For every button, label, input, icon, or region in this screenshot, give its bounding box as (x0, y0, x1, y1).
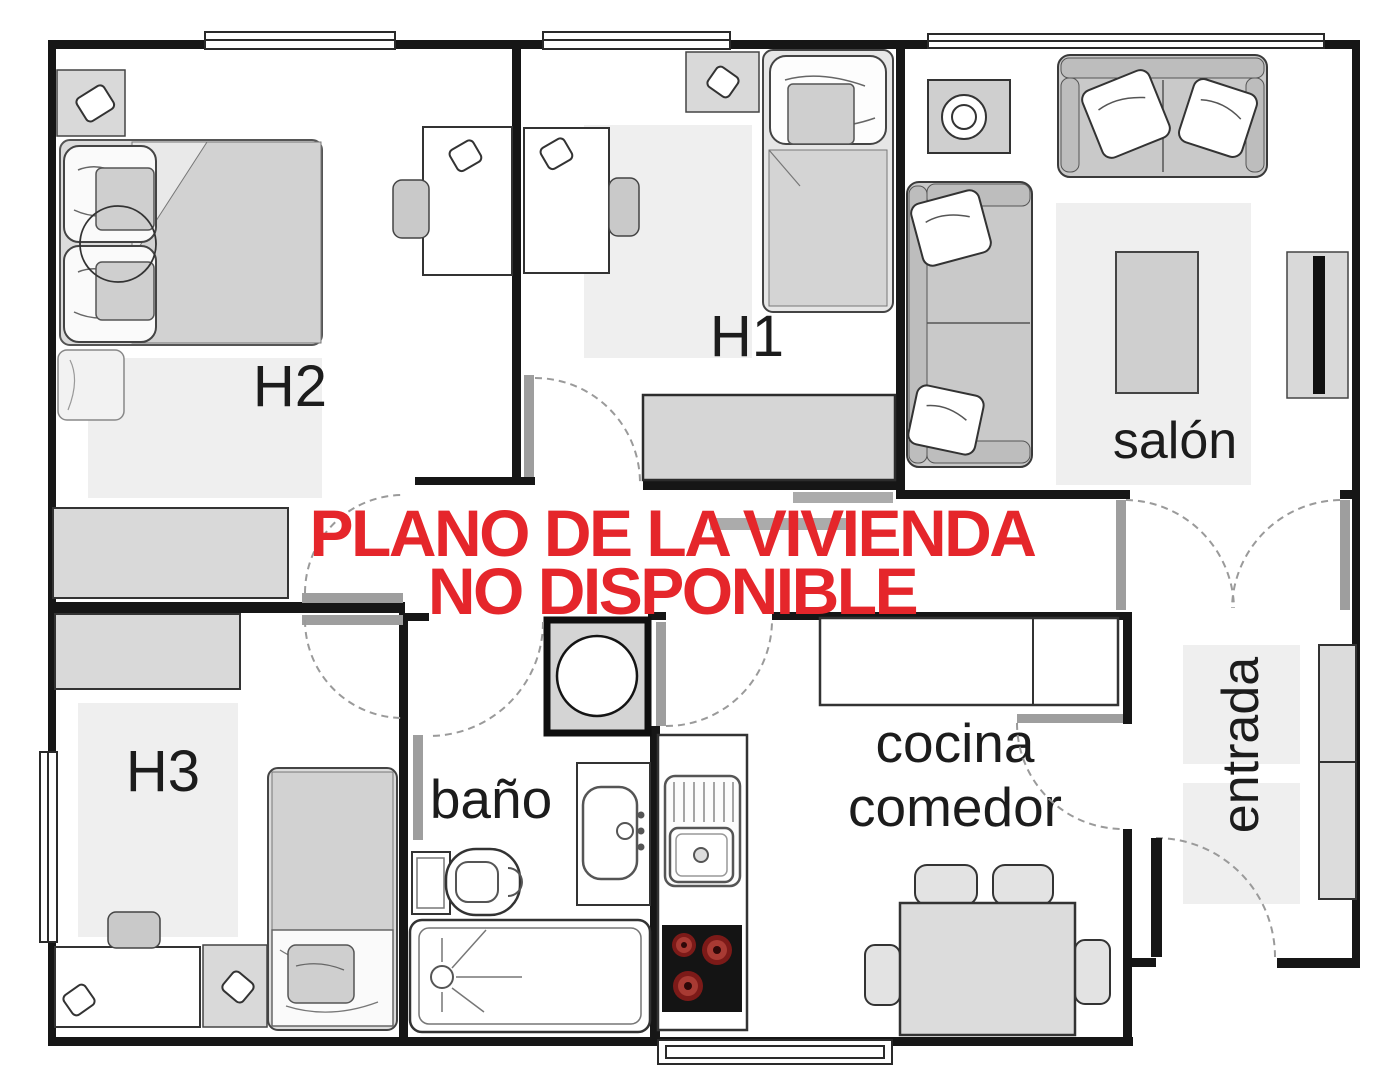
duvet (272, 772, 393, 944)
unavailable-overlay: PLANO DE LA VIVIENDA NO DISPONIBLE (310, 496, 1036, 628)
faucet-icon (694, 848, 708, 862)
wall (1123, 612, 1132, 724)
bed-throw (58, 350, 124, 420)
window-cocina (658, 1040, 892, 1064)
washing-machine (547, 620, 648, 733)
tv-unit (1287, 252, 1348, 398)
washer-drum-icon (557, 636, 637, 716)
cooktop (662, 925, 742, 1012)
single-bed (268, 768, 397, 1030)
hall-cabinet (1319, 645, 1356, 899)
wall (1340, 490, 1360, 499)
room-label-salon: salón (1113, 412, 1237, 470)
wall (48, 602, 405, 613)
shower (410, 920, 650, 1032)
door-leaf (1017, 714, 1123, 723)
room-cocina: cocina comedor (658, 618, 1118, 1035)
wall (399, 613, 429, 621)
door-arc-cocina (666, 620, 772, 726)
door-leaf (656, 622, 666, 726)
coffee-table (1116, 252, 1198, 393)
room-h3: H3 (55, 614, 397, 1030)
sofa-top (1058, 55, 1267, 177)
cushion (788, 84, 854, 144)
chair (609, 178, 639, 236)
single-bed (763, 50, 893, 312)
door-leaf (302, 615, 403, 625)
door-arc-salon-left (1126, 500, 1234, 608)
faucet-icon (617, 823, 633, 839)
door-arc-h3 (305, 620, 403, 718)
side-table-lamp (928, 80, 1010, 153)
floor-plan-svg: H2 H1 (0, 0, 1398, 1080)
wall (896, 40, 905, 490)
door-leaf (1340, 500, 1350, 610)
room-label-h2: H2 (253, 354, 327, 419)
chair (393, 180, 429, 238)
room-label-cocina-line2: comedor (848, 776, 1062, 838)
window-h2 (205, 32, 395, 49)
entrance-door-leaf (1151, 838, 1162, 957)
tv-icon (1313, 256, 1325, 394)
room-label-cocina-line1: cocina (876, 712, 1035, 774)
pillow (288, 945, 354, 1003)
wall (399, 613, 408, 1037)
room-label-h1: H1 (710, 304, 784, 369)
door-leaf (413, 735, 423, 840)
wardrobe (53, 508, 288, 598)
dining-set (865, 865, 1110, 1035)
sofa-left (907, 182, 1032, 467)
door-arc-h1 (535, 378, 640, 482)
pillow (907, 384, 986, 457)
dining-table (900, 903, 1075, 1035)
kitchen-sink (665, 776, 740, 886)
overlay-line2: NO DISPONIBLE (428, 554, 917, 628)
room-entrada: entrada (1183, 645, 1356, 904)
chair (108, 912, 160, 948)
kitchen-counter-top (820, 618, 1118, 705)
wall (643, 480, 903, 490)
wardrobe (55, 614, 240, 689)
chair (1075, 940, 1110, 1004)
cushion (96, 168, 154, 230)
wall (48, 1037, 1133, 1046)
toilet (412, 849, 522, 915)
drain-icon (431, 966, 453, 988)
dresser (643, 395, 895, 480)
window-h3 (40, 752, 57, 942)
door-leaf (1116, 500, 1126, 610)
washbasin (577, 763, 650, 905)
room-label-bano: baño (430, 768, 552, 830)
floor-plan: H2 H1 (0, 0, 1398, 1080)
door-arc-bano (429, 622, 543, 736)
lamp-icon (942, 95, 986, 139)
room-salon: salón (907, 55, 1348, 485)
door-leaf (524, 375, 534, 477)
window-h1 (543, 32, 730, 49)
wall (1123, 829, 1132, 1046)
room-label-entrada: entrada (1212, 657, 1270, 833)
door-arc-salon-right (1232, 500, 1340, 608)
window-salon (928, 34, 1324, 48)
wall (415, 477, 535, 485)
room-h1: H1 (524, 50, 895, 480)
chair (865, 945, 900, 1005)
chair (993, 865, 1053, 905)
room-bano: baño (410, 763, 650, 1032)
wall (1277, 958, 1360, 968)
double-bed (60, 140, 322, 345)
wall (512, 40, 521, 483)
wall (1123, 958, 1156, 967)
room-label-h3: H3 (126, 739, 200, 804)
duvet (769, 150, 887, 306)
door-leaf (302, 593, 403, 603)
chair (915, 865, 977, 905)
